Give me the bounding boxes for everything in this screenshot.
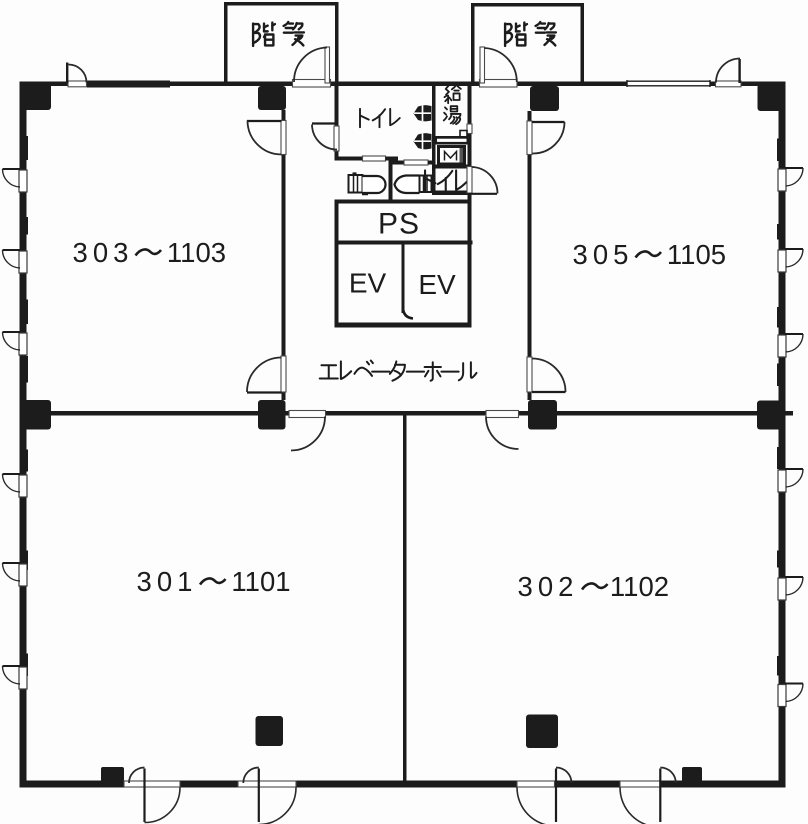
svg-text:1105: 1105 [667,239,726,270]
svg-text:1103: 1103 [167,237,226,268]
svg-text:305: 305 [573,239,634,270]
svg-text:EV: EV [418,269,456,300]
svg-text:EV: EV [349,268,387,299]
svg-text:301: 301 [137,566,198,597]
svg-text:PS: PS [378,208,420,241]
svg-text:302: 302 [518,571,579,602]
svg-text:1101: 1101 [231,566,290,597]
svg-text:303: 303 [73,237,134,268]
svg-text:1102: 1102 [610,571,669,602]
